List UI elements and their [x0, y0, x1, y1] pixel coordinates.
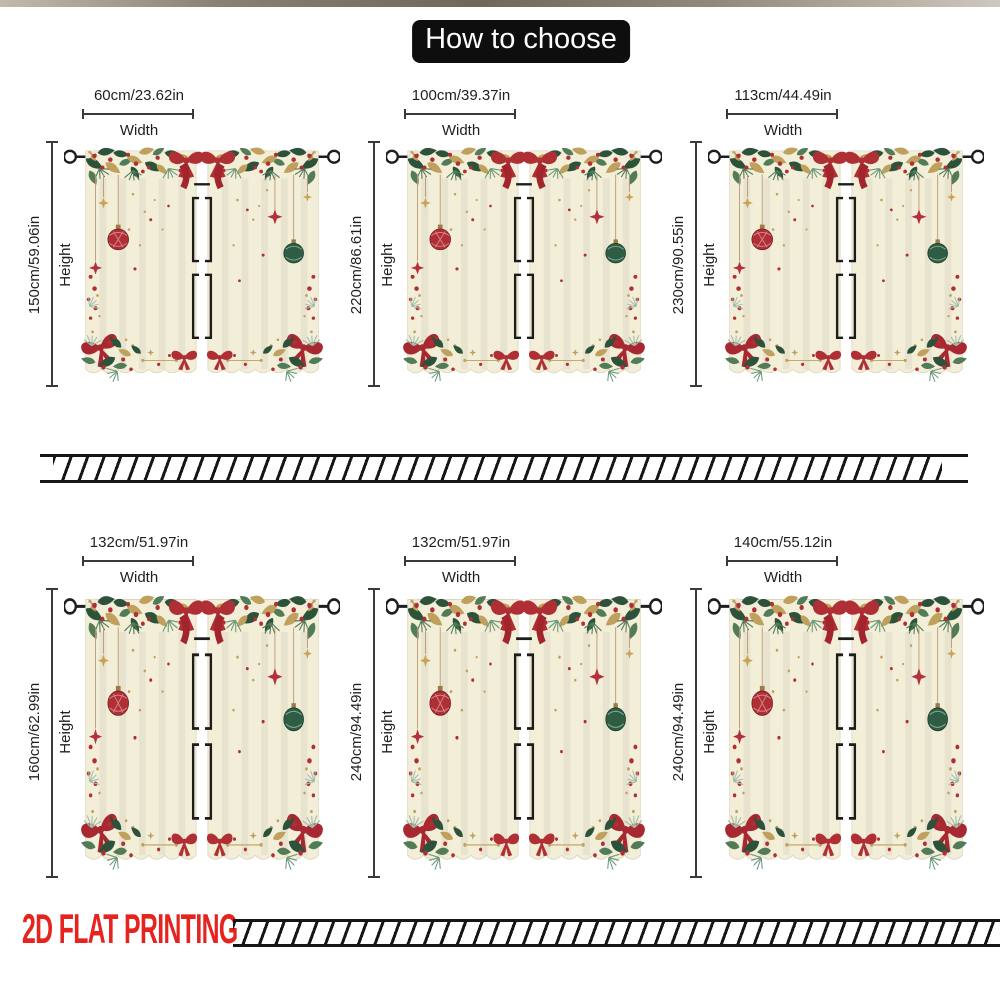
height-dimension-label: 160cm/62.99in — [26, 632, 44, 832]
size-row-bottom: 132cm/51.97in Width 160cm/62.99in Height… — [0, 532, 1000, 900]
width-caption: Width — [64, 569, 214, 586]
size-card: 113cm/44.49in Width 230cm/90.55in Height — [662, 85, 984, 425]
curtain-illustration — [64, 141, 340, 387]
height-measure-line — [695, 588, 697, 878]
width-measure-line — [726, 109, 838, 119]
curtain-illustration — [64, 588, 340, 876]
width-measure-line — [82, 109, 194, 119]
hatched-divider — [233, 919, 1000, 947]
hatched-divider — [40, 454, 968, 483]
width-caption: Width — [386, 569, 536, 586]
size-guide-page: How to choose 60cm/23.62in Width 150cm/5… — [0, 0, 1000, 1000]
hatch-stripes — [233, 922, 1000, 944]
width-measure-line — [404, 109, 516, 119]
size-card: 140cm/55.12in Width 240cm/94.49in Height — [662, 532, 984, 900]
top-border-strip — [0, 0, 1000, 7]
height-measure-line — [51, 141, 53, 387]
width-dimension-label: 100cm/39.37in — [386, 87, 536, 104]
curtain-illustration — [386, 141, 662, 387]
size-row-top: 60cm/23.62in Width 150cm/59.06in Height … — [0, 85, 1000, 425]
size-card: 132cm/51.97in Width 160cm/62.99in Height — [18, 532, 340, 900]
height-dimension-label: 150cm/59.06in — [26, 165, 44, 365]
height-measure-line — [373, 141, 375, 387]
page-title: How to choose — [412, 20, 630, 63]
width-dimension-label: 140cm/55.12in — [708, 534, 858, 551]
size-card: 60cm/23.62in Width 150cm/59.06in Height — [18, 85, 340, 425]
size-card: 132cm/51.97in Width 240cm/94.49in Height — [340, 532, 662, 900]
curtain-illustration — [708, 588, 984, 876]
width-measure-line — [726, 556, 838, 566]
width-dimension-label: 132cm/51.97in — [386, 534, 536, 551]
printing-method-label: 2D FLAT PRINTING — [22, 906, 238, 953]
curtain-illustration — [708, 141, 984, 387]
height-measure-line — [695, 141, 697, 387]
width-measure-line — [404, 556, 516, 566]
width-caption: Width — [708, 122, 858, 139]
size-card: 100cm/39.37in Width 220cm/86.61in Height — [340, 85, 662, 425]
height-dimension-label: 240cm/94.49in — [670, 632, 688, 832]
height-dimension-label: 240cm/94.49in — [348, 632, 366, 832]
width-dimension-label: 60cm/23.62in — [64, 87, 214, 104]
height-dimension-label: 230cm/90.55in — [670, 165, 688, 365]
height-measure-line — [51, 588, 53, 878]
height-dimension-label: 220cm/86.61in — [348, 165, 366, 365]
width-caption: Width — [386, 122, 536, 139]
width-dimension-label: 132cm/51.97in — [64, 534, 214, 551]
width-measure-line — [82, 556, 194, 566]
width-caption: Width — [708, 569, 858, 586]
hatch-stripes — [53, 457, 942, 480]
width-dimension-label: 113cm/44.49in — [708, 87, 858, 104]
curtain-illustration — [386, 588, 662, 876]
height-measure-line — [373, 588, 375, 878]
width-caption: Width — [64, 122, 214, 139]
